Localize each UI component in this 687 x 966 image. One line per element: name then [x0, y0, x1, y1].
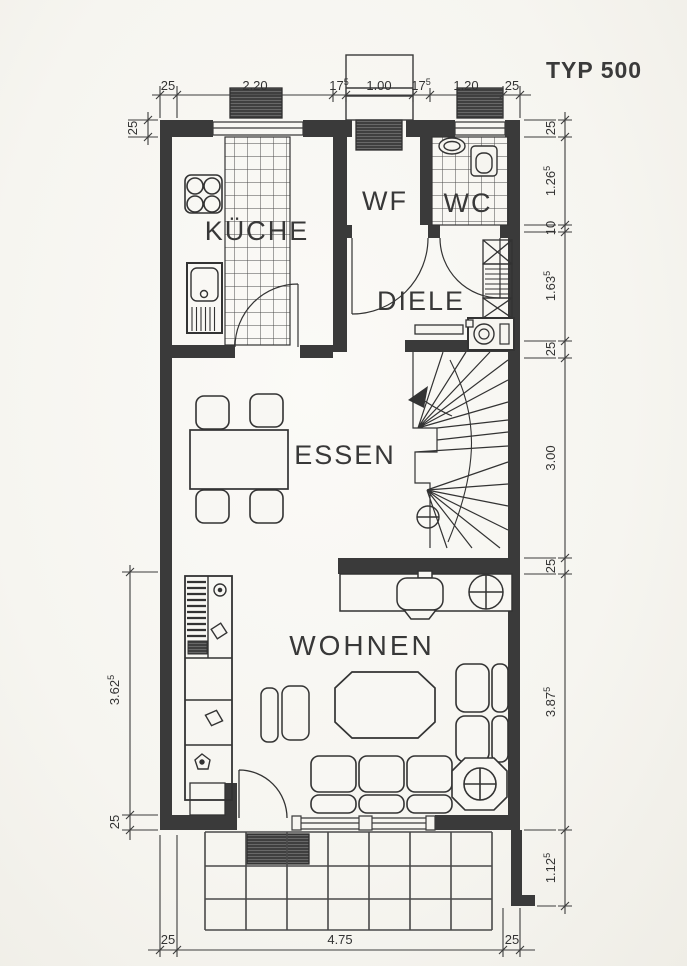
dim-label: 3.00 — [543, 445, 558, 470]
dining-chair — [250, 394, 283, 427]
dim-label: 25 — [125, 121, 140, 135]
toilet-icon — [471, 146, 497, 176]
floorplan-scan: TYP 500 KÜCHE WF WC DIELE ESSEN WOHNEN 2… — [0, 0, 687, 966]
dim-label: 25 — [543, 342, 558, 356]
hall-sideboard — [415, 320, 473, 334]
stool — [261, 688, 278, 742]
side-table — [452, 758, 507, 810]
wall-unit — [185, 576, 232, 800]
room-label-wf: WF — [362, 186, 408, 216]
dim-label: 25 — [543, 559, 558, 573]
entrance-mat — [356, 120, 402, 150]
dim-label: 10 — [543, 221, 558, 235]
dim-label: 1.635 — [542, 271, 558, 301]
dining-furniture — [190, 394, 288, 523]
stair-pole — [417, 506, 439, 528]
stairs — [408, 352, 508, 548]
armchair — [456, 716, 508, 762]
room-label-wohnen: WOHNEN — [289, 630, 435, 661]
stair-treads — [413, 352, 508, 548]
dim-label: 1.125 — [542, 853, 558, 883]
floorplan-drawing: TYP 500 KÜCHE WF WC DIELE ESSEN WOHNEN 2… — [0, 0, 687, 966]
garden-wall — [511, 830, 535, 906]
dim-label: 3.625 — [106, 675, 122, 705]
washbasin-icon — [439, 138, 465, 154]
dim-label: 25 — [543, 121, 558, 135]
washing-machine-icon — [468, 318, 514, 350]
armchair — [456, 664, 508, 712]
dim-label: 1.00 — [366, 78, 391, 93]
wc-window — [455, 122, 505, 135]
room-label-diele: DIELE — [377, 286, 465, 316]
dim-label: 25 — [161, 932, 175, 947]
dining-chair — [196, 396, 229, 429]
tv-icon — [397, 571, 443, 619]
stool — [282, 686, 309, 740]
room-label-kueche: KÜCHE — [205, 216, 310, 246]
kitchen-window — [213, 122, 303, 135]
room-label-essen: ESSEN — [294, 440, 396, 470]
dining-chair — [196, 490, 229, 523]
plan-title: TYP 500 — [546, 57, 642, 83]
living-furniture — [185, 571, 512, 818]
dining-table — [190, 430, 288, 489]
stove-icon — [185, 175, 222, 213]
dim-label: 2.20 — [242, 78, 267, 93]
sofa — [311, 756, 452, 813]
terrace-doormat — [247, 834, 309, 864]
dim-label: 175 — [411, 77, 430, 93]
dim-label: 25 — [107, 815, 122, 829]
terrace-door-arc — [239, 770, 287, 818]
sink-icon — [187, 263, 222, 333]
dim-left-line — [122, 112, 158, 840]
dim-label: 3.875 — [542, 687, 558, 717]
dim-label: 25 — [505, 78, 519, 93]
lamp-icon — [469, 575, 503, 609]
dim-label: 4.75 — [327, 932, 352, 947]
coffee-table — [335, 672, 435, 738]
dim-label: 1.265 — [542, 166, 558, 196]
room-label-wc: WC — [444, 188, 493, 218]
dim-label: 25 — [161, 78, 175, 93]
dim-label: 25 — [505, 932, 519, 947]
duct-shaft — [483, 240, 512, 318]
entry-niche — [190, 783, 225, 815]
dim-label: 1.20 — [453, 78, 478, 93]
dining-chair — [250, 490, 283, 523]
stair-walk-line — [448, 360, 472, 542]
